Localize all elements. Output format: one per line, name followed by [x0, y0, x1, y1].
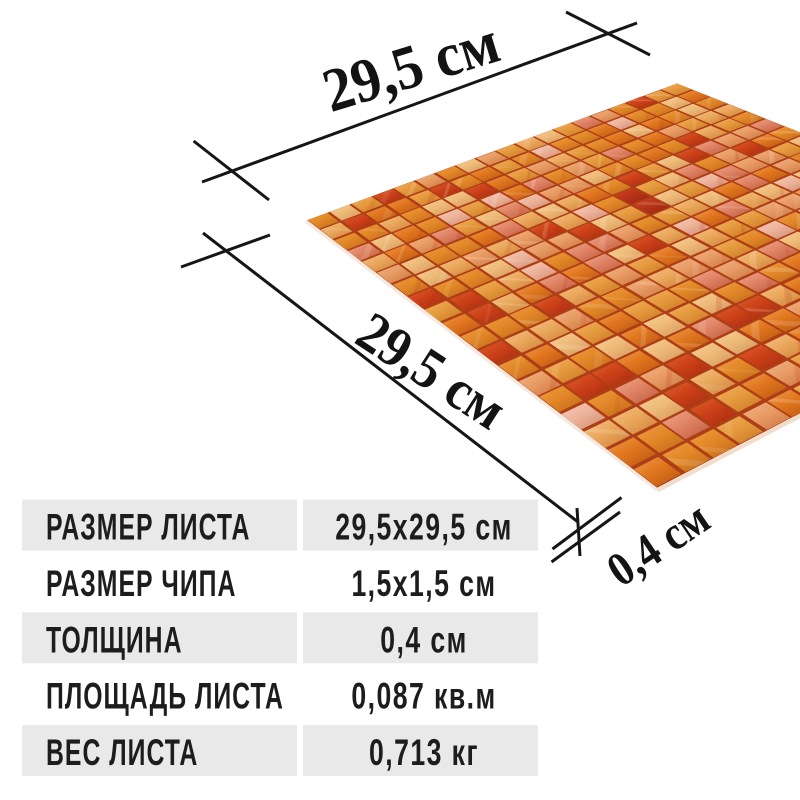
svg-text:ПЛОЩАДЬ ЛИСТА: ПЛОЩАДЬ ЛИСТА [46, 675, 284, 717]
svg-text:ТОЛЩИНА: ТОЛЩИНА [46, 618, 182, 660]
svg-text:0,4 см: 0,4 см [380, 619, 468, 660]
svg-text:РАЗМЕР ЛИСТА: РАЗМЕР ЛИСТА [46, 505, 250, 547]
svg-text:1,5x1,5 см: 1,5x1,5 см [351, 563, 496, 604]
svg-text:29,5x29,5 см: 29,5x29,5 см [335, 506, 513, 547]
svg-text:ВЕС ЛИСТА: ВЕС ЛИСТА [46, 731, 198, 773]
svg-text:0,4 см: 0,4 см [597, 491, 719, 597]
svg-text:РАЗМЕР ЧИПА: РАЗМЕР ЧИПА [46, 562, 236, 604]
svg-text:0,087 кв.м: 0,087 кв.м [351, 675, 496, 716]
svg-text:29,5 см: 29,5 см [315, 7, 507, 125]
svg-text:0,713 кг: 0,713 кг [369, 732, 479, 773]
